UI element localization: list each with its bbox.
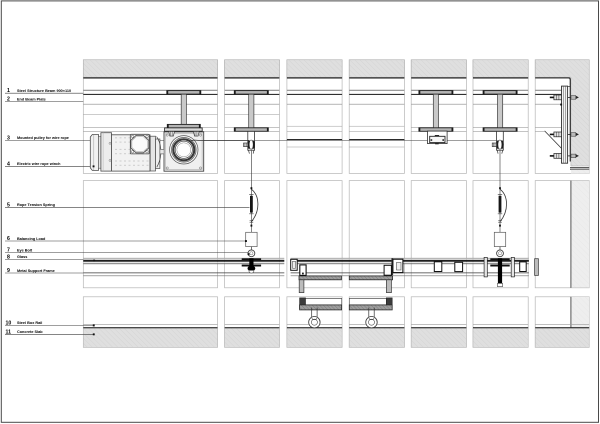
svg-text:11: 11 — [6, 329, 12, 335]
svg-text:Balancing Load: Balancing Load — [17, 237, 46, 241]
svg-text:2: 2 — [7, 97, 10, 103]
svg-text:Concrete Slab: Concrete Slab — [17, 330, 43, 334]
svg-text:10: 10 — [6, 320, 12, 326]
svg-text:Electric wire rope winch: Electric wire rope winch — [17, 162, 61, 166]
svg-text:End Beam Plate: End Beam Plate — [17, 97, 46, 101]
svg-text:Steel Structure Beam 900×110: Steel Structure Beam 900×110 — [17, 89, 71, 93]
svg-text:Eye Bolt: Eye Bolt — [17, 248, 33, 252]
svg-text:9: 9 — [7, 268, 10, 274]
svg-text:5: 5 — [7, 202, 10, 208]
svg-text:8: 8 — [7, 254, 10, 260]
svg-text:6: 6 — [7, 236, 10, 242]
svg-text:4: 4 — [7, 161, 10, 167]
svg-text:Mounted pulley for wire rope: Mounted pulley for wire rope — [17, 136, 69, 140]
svg-text:Glass: Glass — [17, 255, 27, 259]
svg-text:3: 3 — [7, 135, 10, 141]
svg-text:7: 7 — [7, 248, 10, 254]
svg-text:Metal Support Frame: Metal Support Frame — [17, 269, 55, 273]
svg-text:1: 1 — [7, 88, 10, 94]
svg-text:Steel Box Rail: Steel Box Rail — [17, 321, 42, 325]
svg-text:Rope Tension Spring: Rope Tension Spring — [17, 203, 56, 207]
